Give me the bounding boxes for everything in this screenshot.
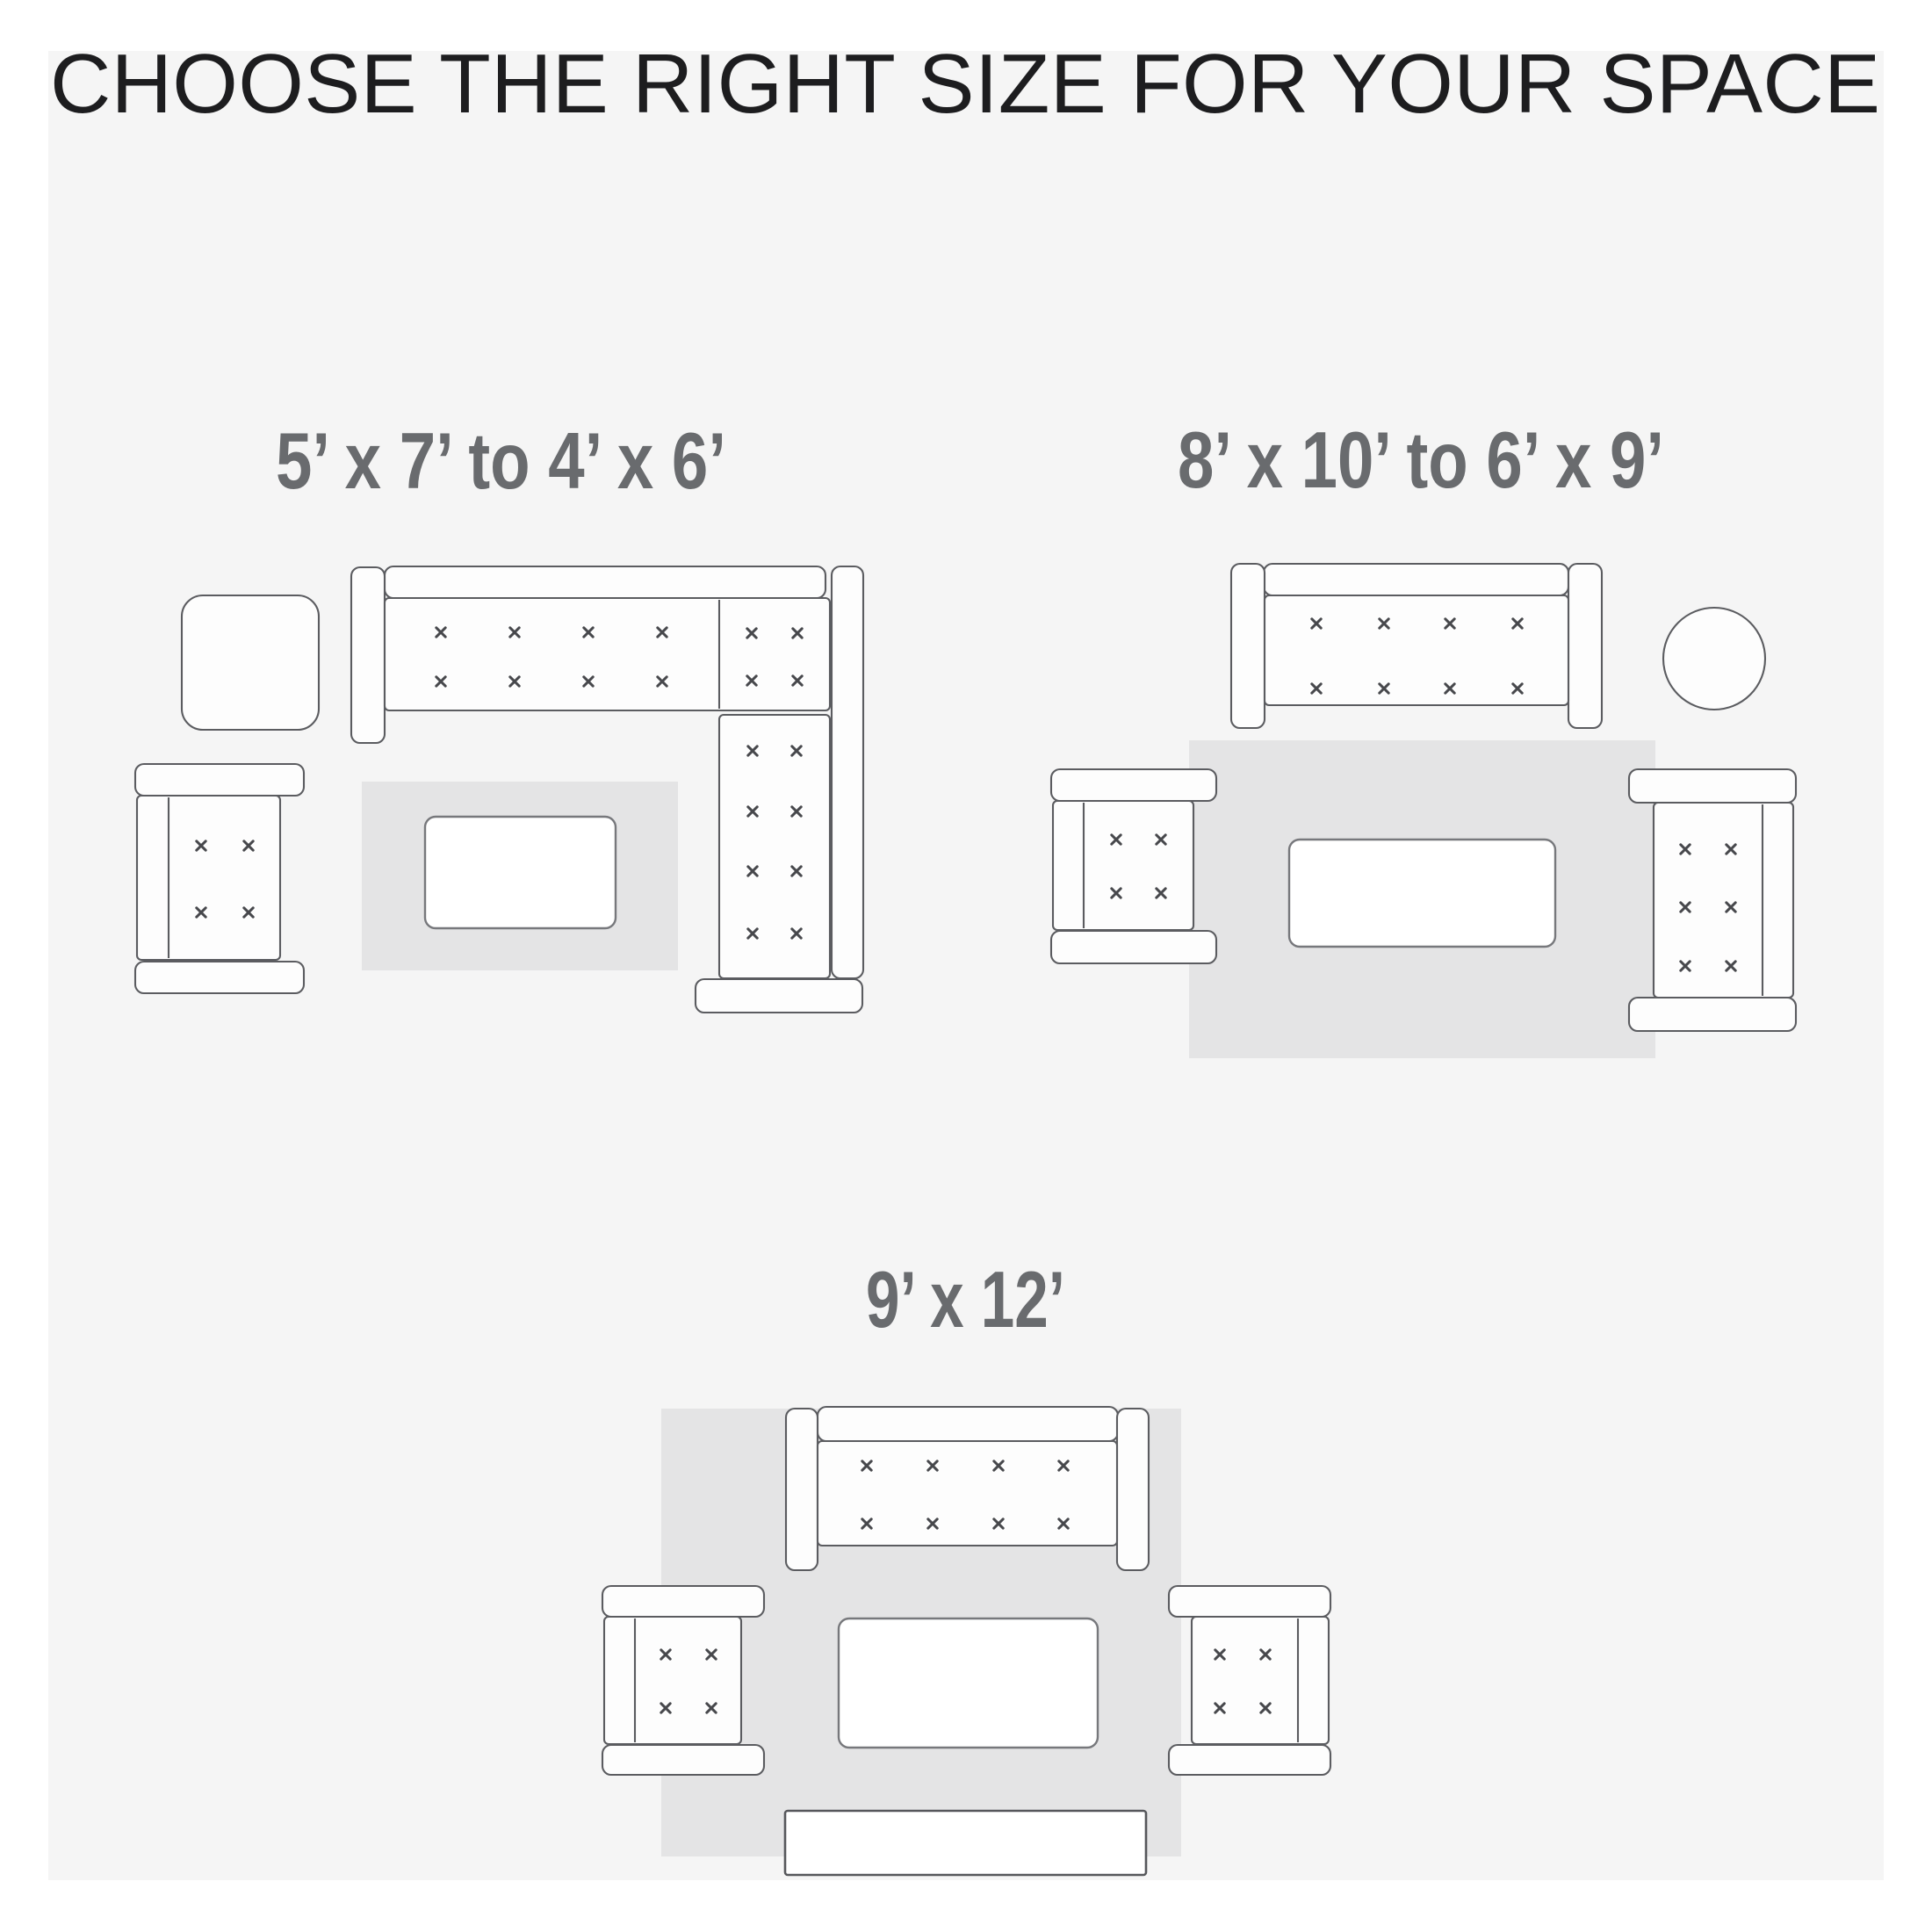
svg-text:8’ x 10’ to 6’ x 9’: 8’ x 10’ to 6’ x 9’ xyxy=(1178,416,1664,505)
svg-text:CHOOSE THE RIGHT SIZE FOR YOUR: CHOOSE THE RIGHT SIZE FOR YOUR SPACE xyxy=(50,37,1880,131)
svg-text:9’ x 12’: 9’ x 12’ xyxy=(866,1256,1065,1344)
svg-text:5’ x 7’ to 4’ x 6’: 5’ x 7’ to 4’ x 6’ xyxy=(276,417,726,506)
